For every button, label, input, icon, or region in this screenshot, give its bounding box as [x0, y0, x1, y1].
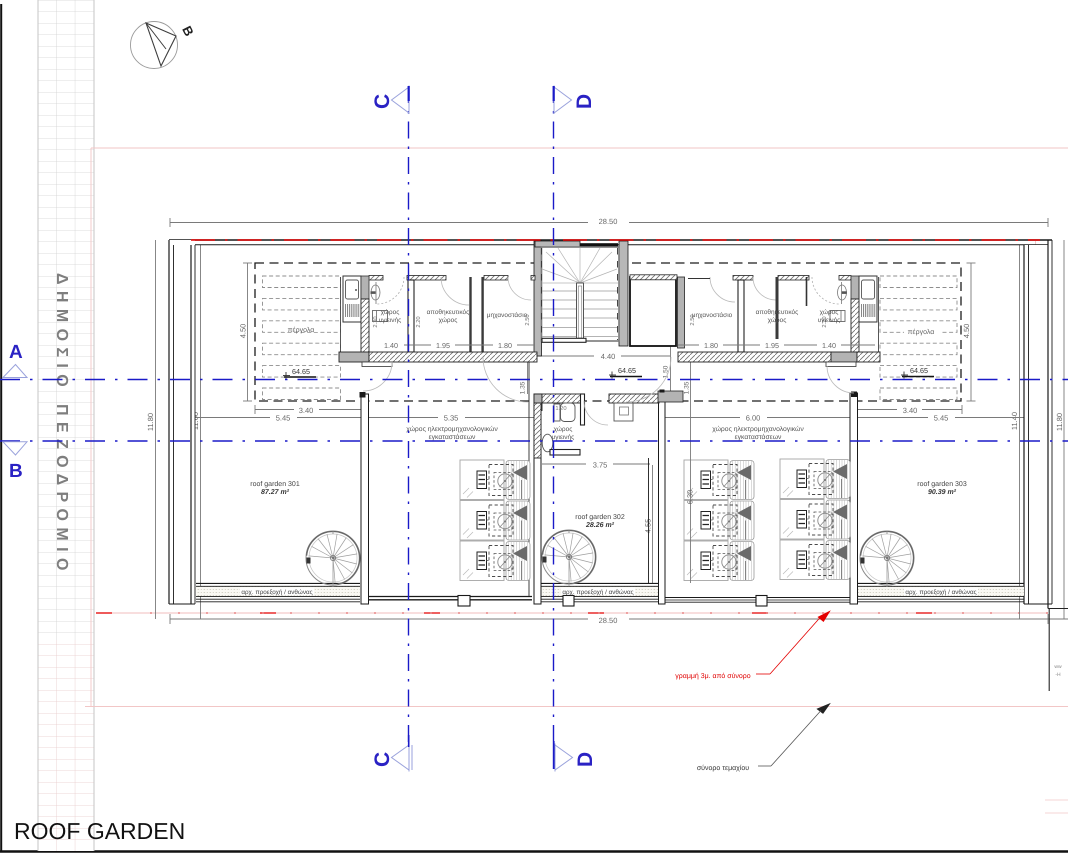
svg-text:roof garden 303: roof garden 303 — [917, 480, 967, 488]
svg-text:roof garden 301: roof garden 301 — [250, 480, 300, 488]
svg-text:11.80: 11.80 — [146, 413, 155, 431]
svg-text:11.80: 11.80 — [1055, 413, 1064, 431]
svg-text:roof garden 302: roof garden 302 — [575, 513, 625, 521]
svg-text:χώρος: χώρος — [768, 317, 787, 324]
svg-text:σύνορο τεμαχίου: σύνορο τεμαχίου — [697, 764, 749, 772]
svg-text:γραμμή 3μ. από σύνορο: γραμμή 3μ. από σύνορο — [675, 672, 750, 680]
svg-text:4.50: 4.50 — [962, 324, 971, 339]
svg-text:χώρος: χώρος — [820, 309, 839, 316]
svg-text:1.35: 1.35 — [520, 381, 527, 394]
svg-text:ww: ww — [1054, 664, 1062, 670]
svg-text:5.45: 5.45 — [934, 414, 949, 423]
svg-text:χώρος: χώρος — [554, 426, 573, 433]
svg-text:D: D — [574, 752, 597, 767]
svg-text:1.95: 1.95 — [436, 341, 450, 350]
svg-text:1.40: 1.40 — [384, 341, 398, 350]
svg-text:87.27 m²: 87.27 m² — [261, 489, 290, 496]
svg-text:1.40: 1.40 — [822, 341, 836, 350]
svg-text:υγιεινής: υγιεινής — [379, 317, 402, 324]
svg-text:2.20: 2.20 — [415, 316, 422, 327]
svg-text:αρχ. προεξοχή / ανθώνας: αρχ. προεξοχή / ανθώνας — [241, 589, 312, 596]
svg-text:χώρος ηλεκτρομηχανολογικών: χώρος ηλεκτρομηχανολογικών — [406, 425, 498, 433]
svg-text:3.40: 3.40 — [903, 406, 918, 415]
svg-text:πέργολα: πέργολα — [288, 326, 315, 334]
svg-text:χώρος: χώρος — [381, 309, 400, 316]
svg-text:μηχανοστάσιο: μηχανοστάσιο — [487, 312, 528, 319]
svg-text:11.40: 11.40 — [1010, 412, 1019, 430]
svg-text:εγκαταστάσεων: εγκαταστάσεων — [429, 433, 476, 441]
svg-text:A: A — [9, 342, 23, 363]
svg-text:αρχ. προεξοχή / ανθώνας: αρχ. προεξοχή / ανθώνας — [905, 589, 976, 596]
svg-text:χώρος: χώρος — [439, 317, 458, 324]
svg-text:64.65: 64.65 — [292, 367, 310, 376]
svg-text:2.50: 2.50 — [524, 314, 531, 325]
svg-text:28.50: 28.50 — [599, 217, 618, 226]
svg-text:ΔΗΜΟΣΙΟ ΠΕΖΟΔΡΟΜΙΟ: ΔΗΜΟΣΙΟ ΠΕΖΟΔΡΟΜΙΟ — [53, 273, 70, 577]
svg-text:μηχανοστάσιο: μηχανοστάσιο — [692, 312, 733, 319]
svg-text:4.40: 4.40 — [601, 352, 616, 361]
svg-text:5.45: 5.45 — [276, 414, 291, 423]
svg-text:28.26 m²: 28.26 m² — [585, 522, 615, 529]
svg-text:6.00: 6.00 — [746, 414, 761, 423]
svg-text:1.20: 1.20 — [555, 405, 566, 412]
svg-text:πέργολα: πέργολα — [908, 328, 935, 336]
svg-text:5.35: 5.35 — [444, 414, 459, 423]
svg-text:C: C — [371, 752, 394, 767]
svg-text:3.75: 3.75 — [593, 461, 608, 470]
svg-text:αποθηκευτικός: αποθηκευτικός — [427, 309, 470, 316]
svg-text:28.50: 28.50 — [599, 616, 618, 625]
svg-text:-H: -H — [1055, 672, 1061, 678]
svg-text:ROOF GARDEN: ROOF GARDEN — [14, 818, 185, 844]
svg-text:1.35: 1.35 — [684, 381, 691, 394]
svg-text:υγιεινής: υγιεινής — [818, 317, 841, 324]
svg-text:3.40: 3.40 — [299, 406, 314, 415]
svg-text:αποθηκευτικός: αποθηκευτικός — [756, 309, 799, 316]
svg-text:2.50: 2.50 — [689, 314, 696, 325]
svg-text:εγκαταστάσεων: εγκαταστάσεων — [735, 433, 782, 441]
svg-text:C: C — [371, 94, 394, 109]
svg-text:4.55: 4.55 — [644, 519, 653, 534]
svg-text:υγιεινής: υγιεινής — [552, 434, 575, 441]
svg-text:6.30: 6.30 — [686, 490, 695, 505]
svg-text:64.65: 64.65 — [618, 366, 636, 375]
svg-text:2.30: 2.30 — [372, 316, 379, 327]
svg-text:1.80: 1.80 — [498, 341, 512, 350]
svg-text:1.95: 1.95 — [765, 341, 779, 350]
svg-text:χώρος ηλεκτρομηχανολογικών: χώρος ηλεκτρομηχανολογικών — [712, 425, 804, 433]
svg-text:D: D — [573, 94, 596, 109]
svg-text:90.39 m²: 90.39 m² — [928, 489, 957, 496]
svg-text:4.50: 4.50 — [239, 324, 248, 339]
svg-text:B: B — [9, 461, 23, 482]
svg-text:1.80: 1.80 — [704, 341, 718, 350]
svg-text:64.65: 64.65 — [910, 366, 928, 375]
